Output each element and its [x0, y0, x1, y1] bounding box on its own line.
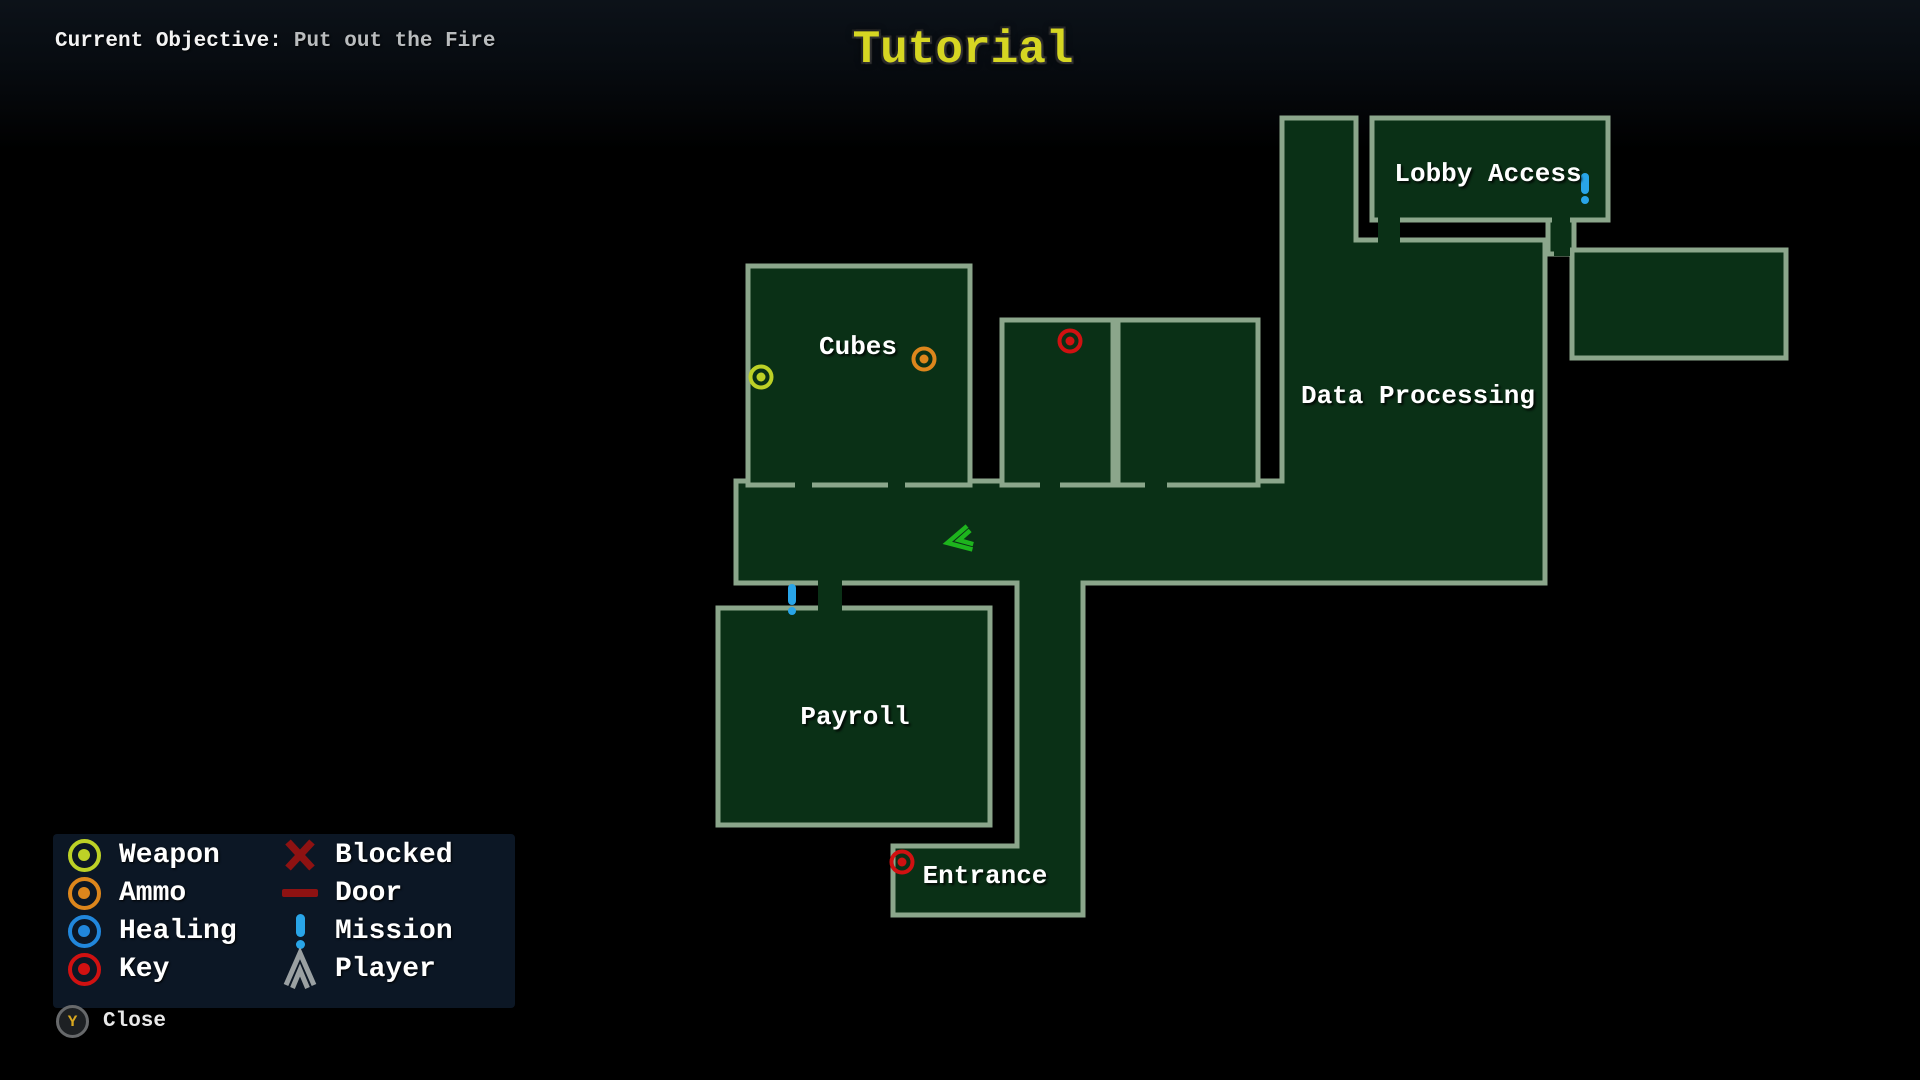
healing-icon	[61, 915, 107, 948]
door-connector-right-wing	[1554, 244, 1570, 256]
room-label-payroll: Payroll	[800, 702, 909, 732]
room-storage-b	[1118, 320, 1258, 485]
legend-panel: Weapon Ammo Healing Key Blocked Door	[53, 834, 515, 1008]
ammo-icon	[61, 877, 107, 910]
room-cubes	[748, 266, 970, 485]
close-hint: Y Close	[56, 1005, 166, 1038]
close-label: Close	[103, 1010, 166, 1033]
mission-marker-icon	[788, 584, 796, 615]
door-lobby-dataprocessing	[1378, 206, 1400, 246]
room-label-entrance: Entrance	[923, 861, 1048, 891]
mission-marker-icon	[1581, 173, 1589, 204]
key-icon	[61, 953, 107, 986]
blocked-icon	[277, 838, 323, 872]
page-title: Tutorial	[853, 24, 1074, 76]
room-storage-a	[1002, 320, 1113, 485]
door-storage-a	[1040, 464, 1060, 498]
room-right-wing	[1572, 250, 1786, 358]
legend-item-blocked: Blocked	[277, 836, 453, 874]
weapon-icon	[61, 839, 107, 872]
door-icon	[277, 889, 323, 897]
objective-label: Current Objective:	[55, 30, 282, 53]
legend-item-key: Key	[61, 950, 169, 988]
door-storage-b	[1145, 464, 1167, 498]
player-icon	[277, 948, 323, 990]
legend-item-ammo: Ammo	[61, 874, 186, 912]
objective-value: Put out the Fire	[294, 30, 496, 53]
current-objective: Current Objective:Put out the Fire	[55, 30, 495, 53]
legend-item-player: Player	[277, 950, 436, 988]
close-button[interactable]: Y	[56, 1005, 89, 1038]
legend-item-weapon: Weapon	[61, 836, 220, 874]
legend-item-healing: Healing	[61, 912, 237, 950]
door-lobby-connector	[1552, 212, 1570, 226]
door-cubes-west	[795, 464, 812, 498]
door-payroll	[818, 572, 842, 620]
gamepad-y-icon: Y	[68, 1013, 78, 1031]
door-cubes-east	[888, 464, 905, 498]
room-label-cubes: Cubes	[819, 332, 897, 362]
mission-icon	[277, 914, 323, 949]
room-label-lobby-access: Lobby Access	[1394, 159, 1581, 189]
tutorial-map-screen: Cubes Payroll Entrance Data Processing L…	[0, 0, 1920, 1080]
legend-item-mission: Mission	[277, 912, 453, 950]
room-label-data-processing: Data Processing	[1301, 381, 1535, 411]
legend-item-door: Door	[277, 874, 402, 912]
